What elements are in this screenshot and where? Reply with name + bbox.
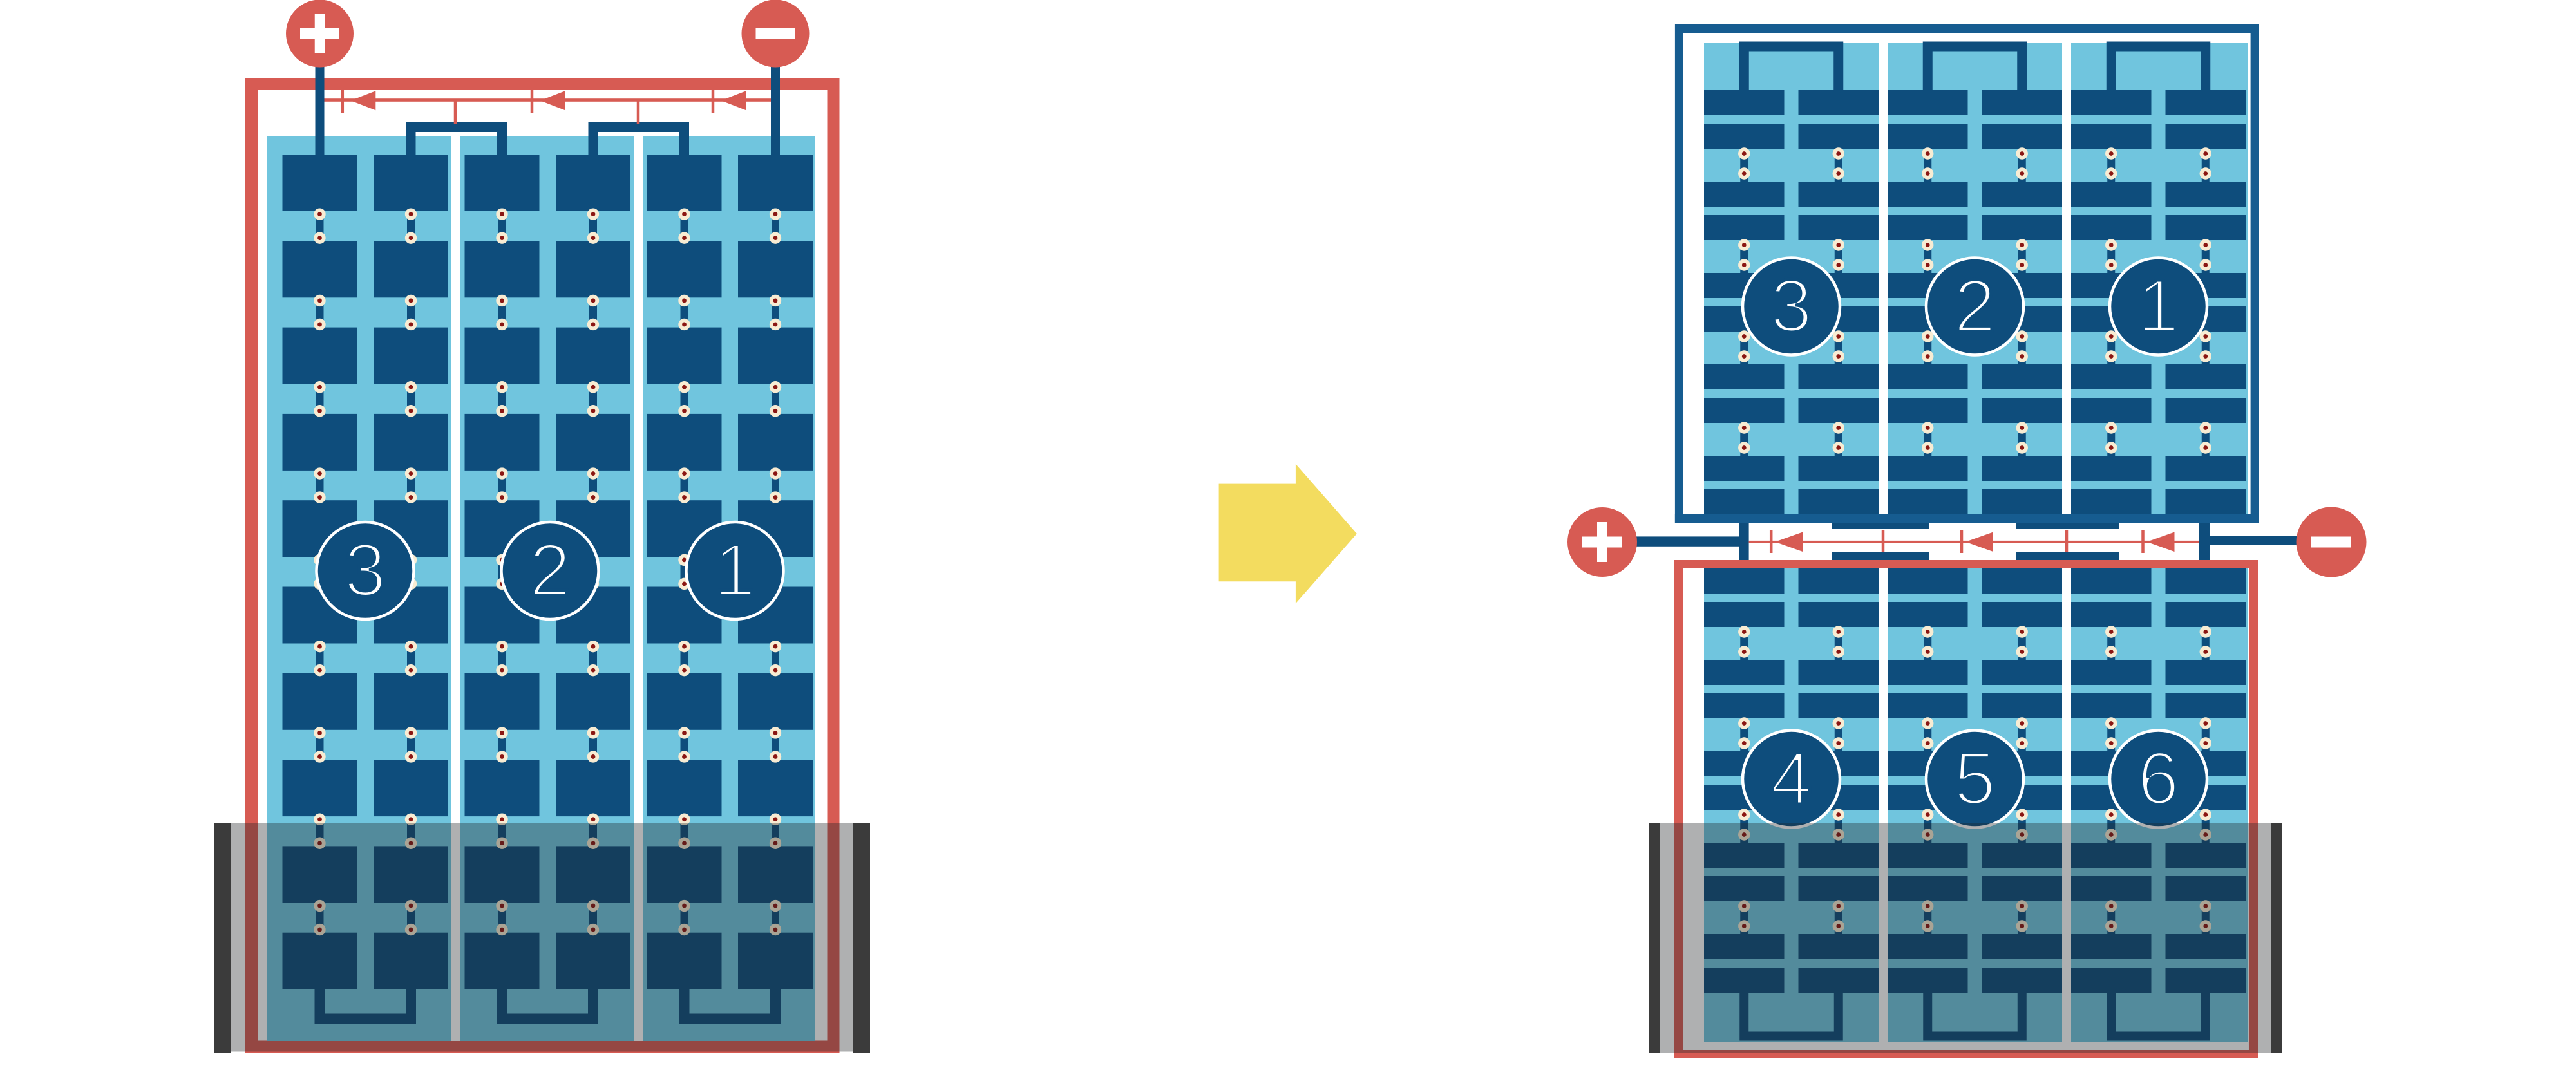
- svg-text:4: 4: [1770, 736, 1812, 820]
- svg-text:2: 2: [1954, 264, 1996, 348]
- svg-text:1: 1: [714, 529, 756, 612]
- svg-text:3: 3: [345, 529, 386, 612]
- svg-text:2: 2: [529, 529, 571, 612]
- svg-text:5: 5: [1954, 736, 1996, 820]
- svg-text:1: 1: [2137, 264, 2179, 348]
- svg-text:6: 6: [2137, 736, 2179, 820]
- svg-text:3: 3: [1770, 264, 1812, 348]
